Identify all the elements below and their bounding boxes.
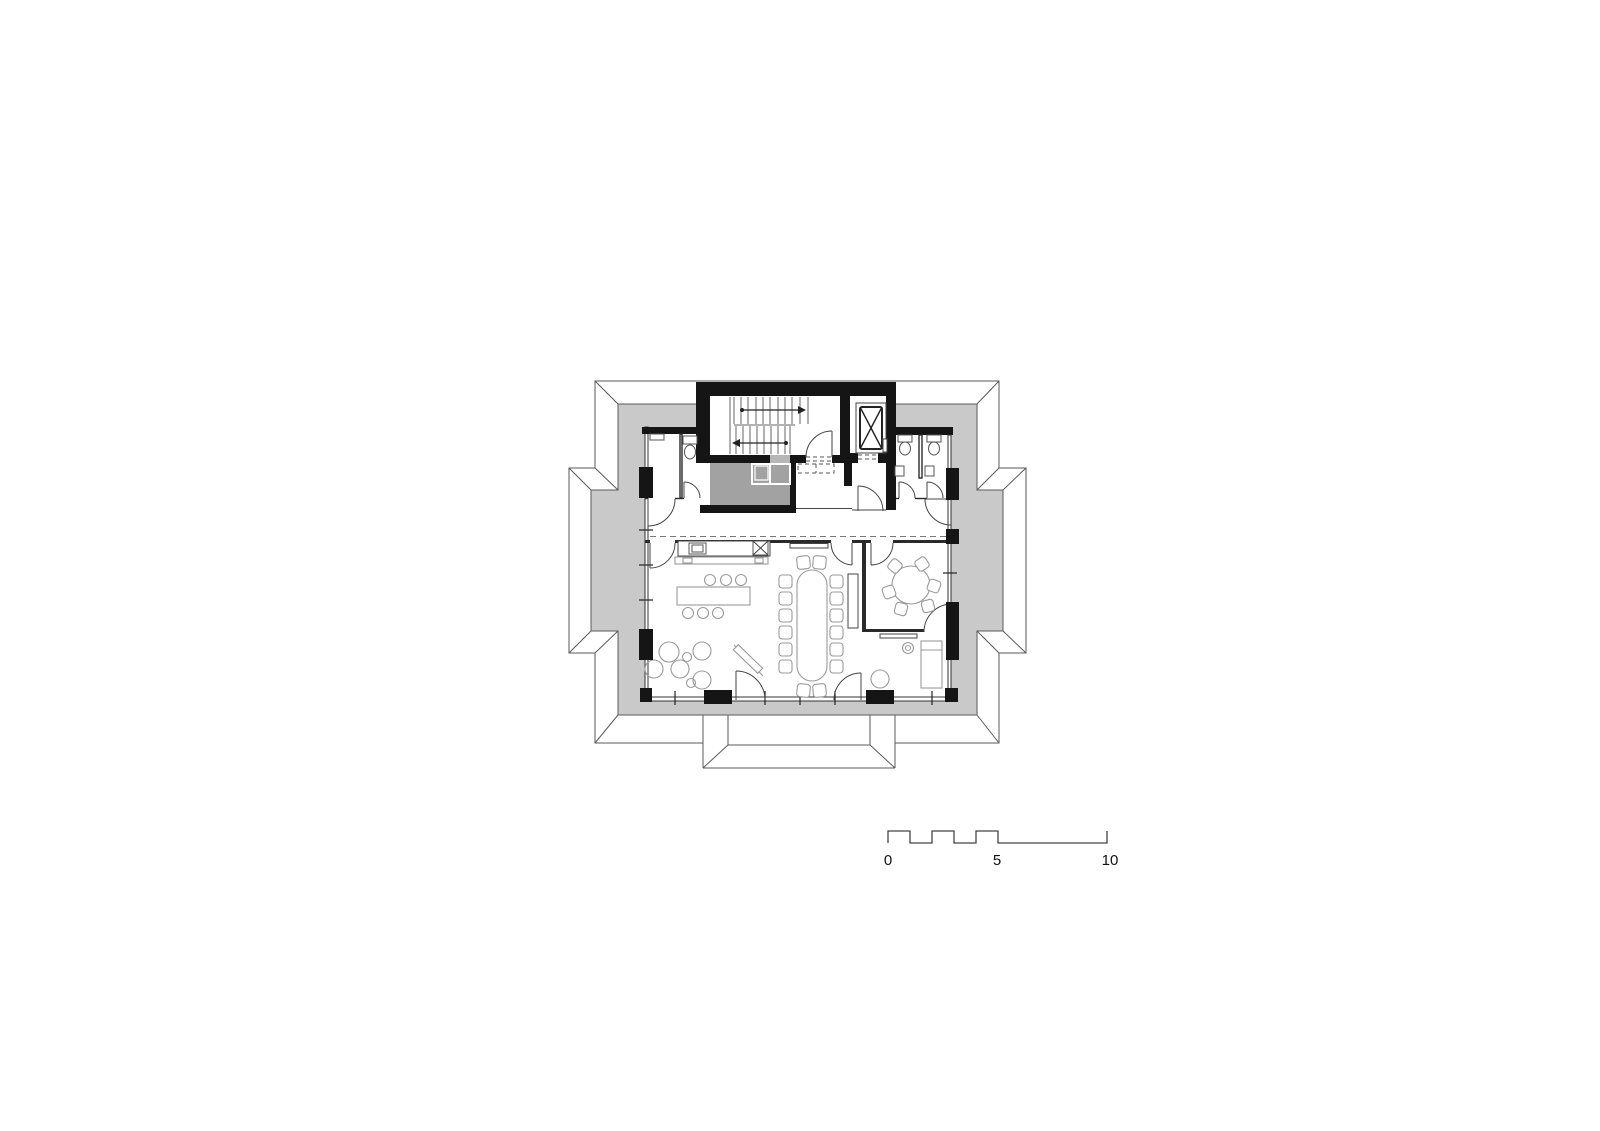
chair — [812, 683, 826, 697]
chair — [921, 599, 936, 614]
wc-left-north-wall — [642, 427, 704, 434]
toilet-icon — [685, 445, 696, 459]
chair — [779, 575, 792, 588]
pier — [945, 688, 958, 702]
meeting-room-south-wall — [862, 629, 924, 632]
chair — [779, 609, 792, 622]
toilet-tank — [898, 435, 912, 442]
chair — [779, 660, 792, 673]
roof-bottom-dormer — [703, 715, 895, 768]
chair — [830, 609, 843, 622]
sink-icon — [925, 466, 934, 476]
stair-elevator-separator — [840, 396, 850, 463]
toilet-tank — [683, 436, 697, 444]
scale-bar: 0 5 10 — [884, 831, 1119, 869]
floor-plan-page: 0 5 10 — [0, 0, 1600, 1131]
chair — [779, 592, 792, 605]
scale-bar-line — [888, 831, 1107, 843]
scale-label-0: 0 — [884, 852, 892, 869]
meeting-room-west-wall — [862, 543, 866, 632]
pier — [866, 690, 894, 704]
scale-label-10: 10 — [1102, 852, 1119, 869]
pier — [639, 629, 653, 660]
core-north-wall — [696, 382, 896, 396]
elevator-door — [883, 439, 887, 452]
duct-block — [770, 455, 790, 463]
toilet-tank — [927, 435, 941, 442]
chair — [830, 626, 843, 639]
chair — [779, 643, 792, 656]
service-room-south-wall — [700, 505, 796, 513]
daybed — [921, 641, 942, 688]
service-rooms — [710, 463, 790, 505]
chair — [796, 555, 810, 569]
chair — [830, 575, 843, 588]
pier — [946, 602, 959, 660]
wc-right-north-wall — [893, 427, 953, 435]
chair — [830, 660, 843, 673]
toilet-icon — [900, 442, 911, 455]
pantry-east-wall — [844, 463, 852, 486]
pier — [640, 688, 652, 702]
floor-plan-drawing: 0 5 10 — [0, 0, 1600, 1131]
stair-south-wall — [700, 455, 770, 463]
toilet-icon — [929, 442, 940, 455]
chair — [830, 643, 843, 656]
chair — [779, 626, 792, 639]
pier — [704, 690, 732, 704]
pier — [639, 467, 653, 498]
sink-icon — [650, 434, 664, 440]
pier — [946, 468, 959, 500]
chair — [796, 683, 810, 697]
scale-label-5: 5 — [993, 852, 1001, 869]
core-west-wall — [696, 382, 710, 463]
chair — [830, 592, 843, 605]
pier — [946, 529, 959, 544]
chair — [894, 602, 909, 617]
sink-icon — [895, 466, 904, 476]
chair — [812, 555, 826, 569]
